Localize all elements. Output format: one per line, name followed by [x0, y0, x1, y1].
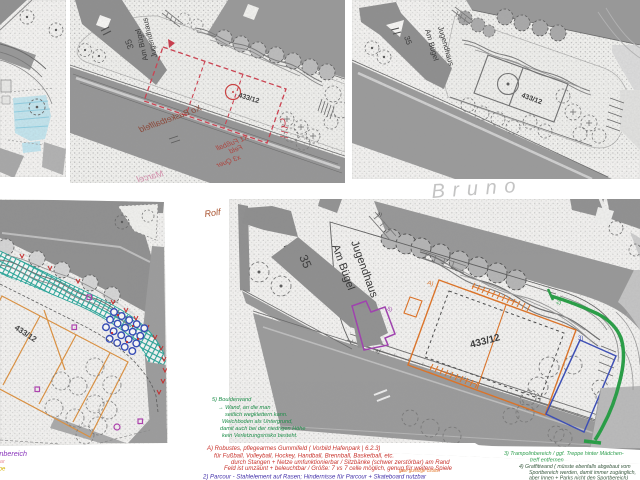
svg-text:→ Wand, an die man: → Wand, an die man [218, 405, 270, 411]
svg-text:treff entfernen: treff entfernen [530, 458, 564, 464]
svg-text:damit auch bei der niedrigen H: damit auch bei der niedrigen Höhe [220, 426, 306, 432]
svg-text:2) Parcour - Stahlelement auf: 2) Parcour - Stahlelement auf Rasen; Hin… [202, 475, 427, 480]
svg-text:Trampolinbereich: Trampolinbereich [0, 449, 27, 458]
svg-text:aber Innen + Parks nicht den S: aber Innen + Parks nicht den Sportbereic… [529, 476, 628, 480]
svg-text:gute günstige Größe: gute günstige Größe [399, 468, 440, 473]
svg-text:Basketball Körbe: Basketball Körbe [0, 467, 6, 473]
svg-text:kein Verletzungsrisiko besteht: kein Verletzungsrisiko besteht. [222, 433, 298, 439]
svg-text:3) Trampolinbereich / ggf. Tre: 3) Trampolinbereich / ggf. Treppe hinter… [504, 451, 624, 457]
svg-text:für Fußball, Volleyball, Hocke: für Fußball, Volleyball, Hockey, Handbal… [214, 454, 394, 460]
svg-text:seitlich wegklettern kann.: seitlich wegklettern kann. [225, 412, 288, 418]
svg-text:A) Robustes, pflegearmes Gummi: A) Robustes, pflegearmes Gummifeld ( Vor… [206, 446, 380, 452]
svg-text:Weichboden als Untergrund,: Weichboden als Untergrund, [222, 419, 293, 425]
svg-text:5) Boulderwand: 5) Boulderwand [212, 397, 252, 403]
